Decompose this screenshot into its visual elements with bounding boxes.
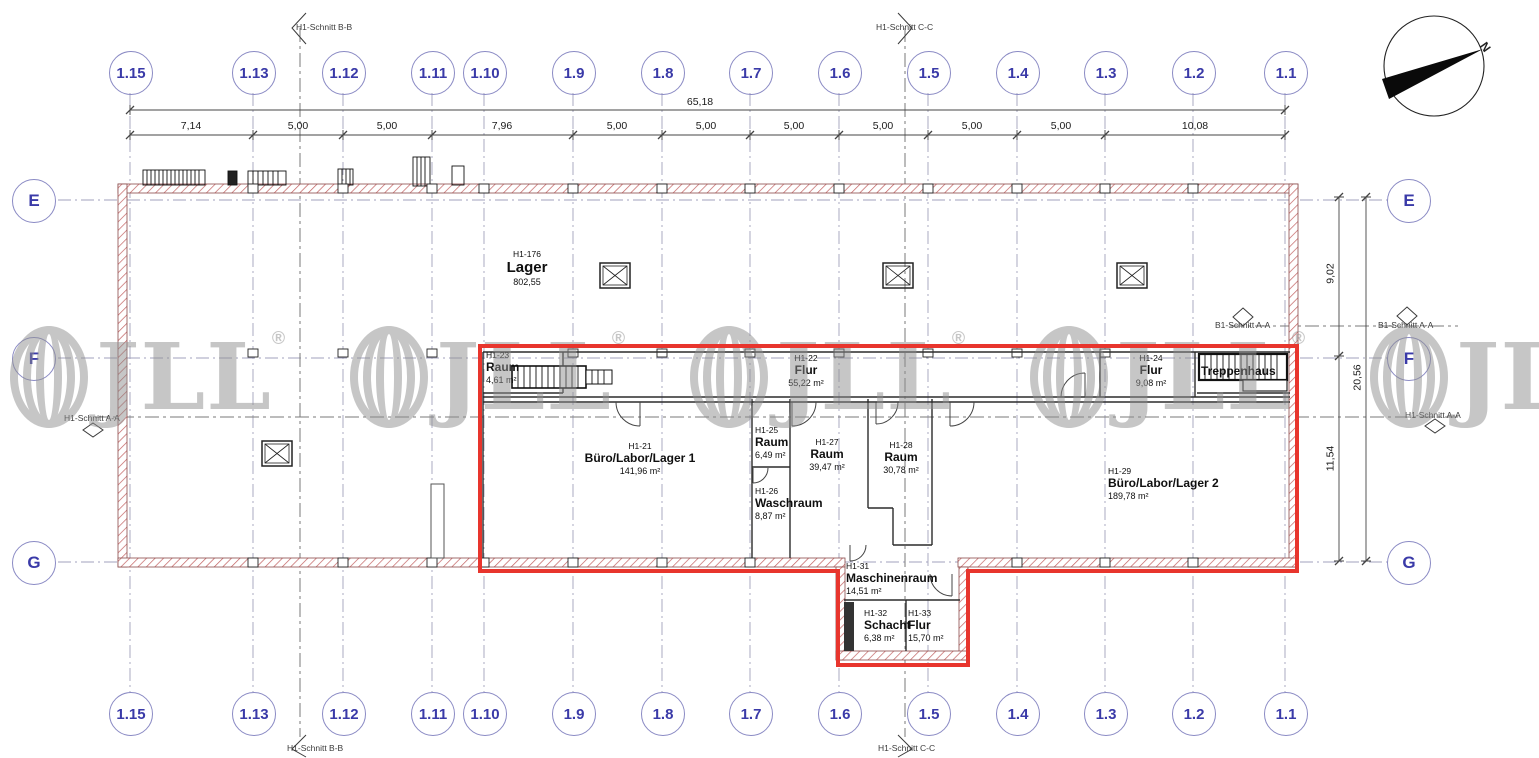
red-highlight-outline [480,346,1297,665]
highlight-outline-layer [0,0,1539,758]
floorplan-canvas: 1.15 1.13 1.12 1.11 1.10 1.9 1.8 1.7 1.6… [0,0,1539,758]
